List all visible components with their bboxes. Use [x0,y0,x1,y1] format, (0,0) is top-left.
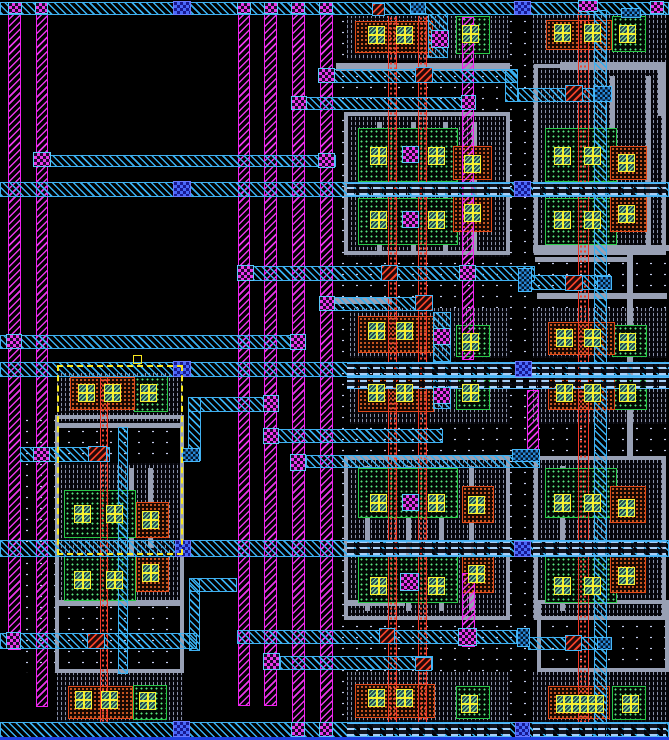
layer-cont [462,333,479,351]
layer-cont [588,695,604,713]
layer-via-b [173,721,190,737]
layer-via-m [237,2,251,14]
layer-cont [462,384,479,402]
layer-m2d [533,541,666,556]
layer-cont [584,147,601,165]
layer-via-m [263,653,280,670]
layer-sel-sq [133,355,142,364]
layer-cont [368,322,385,340]
layer-cont [75,691,92,709]
layer-cont [396,26,413,44]
layer-cont [554,211,571,229]
layer-via-m [263,395,279,412]
layer-m2d [347,723,510,737]
layer-via-m [433,328,451,345]
layer-cont [368,689,385,707]
layer-cont [139,692,156,710]
layer-jbox [410,2,426,14]
layer-cont [368,26,385,44]
layer-m2d [347,183,510,196]
layer-cont [584,211,601,229]
layer-cont [619,384,636,402]
layer-via-m [459,265,476,281]
layer-cont [370,494,387,512]
layer-via-m [650,1,664,14]
layer-cont [584,329,601,347]
layer-via-b [515,361,532,377]
layer-via-m [319,722,333,737]
layer-cont [618,205,635,223]
layer-m2d [347,363,669,376]
layer-cont [619,25,636,43]
layer-via-r [379,628,395,644]
layer-m1 [264,3,277,706]
layer-cont [464,155,481,173]
layer-cont [618,567,635,585]
layer-cont [462,25,479,43]
layer-cont [370,577,387,595]
layer-cont [556,384,573,402]
layer-via-m [402,146,419,163]
layer-via-r [87,633,105,649]
layer-via-m [6,334,22,349]
layer-cont [464,204,481,222]
layer-m2d [533,723,666,737]
layer-m1 [238,3,250,706]
layer-cont [396,384,413,402]
layer-jbox [594,86,612,102]
layer-m2 [189,578,200,651]
layer-via-m [431,30,449,48]
layer-via-m [33,447,50,462]
layer-cont [396,322,413,340]
layer-via-m [318,153,335,168]
layer-sel [57,365,183,555]
layer-jbox [182,448,200,462]
layer-via-r [415,67,433,83]
layer-cont [584,384,601,402]
layer-via-r [565,275,583,291]
layer-m2 [280,656,433,670]
layer-jbox [597,276,612,290]
layer-cont [142,564,159,582]
layer-cont [584,494,601,512]
layer-via-m [433,387,451,404]
layer-cont [556,329,573,347]
layer-cont [428,494,445,512]
layer-cont [468,565,485,583]
layer-cont [554,24,571,42]
layer-cont [428,147,445,165]
layer-m2 [277,429,443,443]
layer-cont [368,384,385,402]
layer-cont [556,695,572,713]
layer-m2 [505,69,518,102]
layer-via-m [263,428,279,444]
layer-via-m [400,573,419,591]
layer-jbox [518,268,532,292]
layer-via-m [578,0,598,12]
layer-m2d [533,183,666,196]
layer-via-m [33,152,51,167]
layer-cont [618,499,635,517]
layer-via-r [565,85,583,102]
layer-via-m [8,2,22,14]
layer-m2 [298,97,465,110]
layer-via-m [402,211,419,228]
layer-via-m [264,2,278,14]
layer-via-r [565,635,582,651]
layer-m2 [306,455,540,468]
layer-via-m [237,265,254,281]
layer-cont [428,211,445,229]
layer-via-m [318,68,335,83]
layer-via-m [319,296,335,311]
layer-via-m [291,722,305,737]
layer-cont [554,577,571,595]
layer-m2 [0,335,305,349]
layer-via-r [372,3,385,16]
layer-cont [428,577,445,595]
layer-via-m [461,95,476,110]
layer-via-b [514,1,531,15]
layer-via-m [290,454,306,471]
layer-cont [461,695,478,713]
layer-cont [468,496,485,514]
layer-jbox [621,8,641,18]
layer-via-m [319,2,333,14]
layer-via-m [402,494,419,511]
layer-cont [618,154,635,172]
layer-cont [370,211,387,229]
layer-gray [658,62,666,116]
layer-via-m [458,628,477,646]
layer-via-m [6,632,21,649]
layer-cont [622,695,639,713]
layer-cont [554,147,571,165]
layer-gray [560,62,666,70]
layer-jbox [512,449,540,462]
layer-via-b [515,722,530,737]
layer-jbox [517,628,530,647]
layer-via-b [173,1,191,15]
layer-via-r [415,657,432,671]
layer-via-m [290,334,306,350]
layer-cont [101,691,118,709]
layer-via-m [291,96,307,110]
layer-via-r [415,295,433,311]
layer-via-m [291,2,305,14]
layer-m1 [36,3,48,707]
layer-cont [584,24,601,42]
layer-via-b [514,541,531,557]
layer-cont [370,147,387,165]
layer-m2d [347,541,510,556]
layer-m2 [0,2,669,15]
layer-cont [554,494,571,512]
layer-cont [106,571,123,589]
layer-cont [396,689,413,707]
layer-cont [584,577,601,595]
layer-cont [572,695,588,713]
layer-cont [74,571,91,589]
layer-via-b [173,181,191,197]
layer-cont [619,333,636,351]
layer-jbox [597,637,612,650]
layer-m2 [40,155,336,167]
ic-layout-canvas[interactable] [0,0,669,740]
layer-via-b [514,181,531,197]
layer-via-r [381,265,398,281]
layer-via-m [35,2,48,14]
